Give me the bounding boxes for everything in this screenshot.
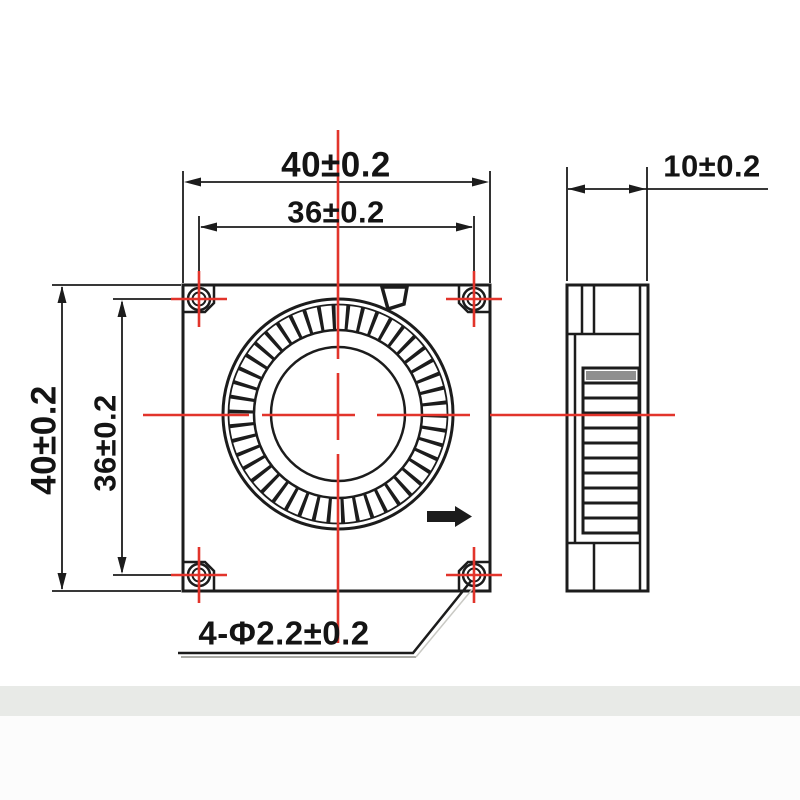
crosshair-hole-top-right — [446, 271, 502, 327]
dim-label-mounting-holes: 4-Φ2.2±0.2 — [198, 617, 369, 650]
side-view — [567, 285, 648, 591]
technical-drawing-canvas: 40±0.2 36±0.2 40±0.2 36±0.2 10±0.2 4-Φ2.… — [0, 0, 800, 800]
dim-label-hole-spacing-top: 36±0.2 — [287, 197, 385, 228]
side-view-vent-frame — [583, 368, 639, 533]
housing-notch — [382, 287, 407, 309]
dimension-lines — [62, 182, 768, 589]
side-view-top-cap — [567, 285, 640, 334]
below-band-area — [0, 716, 800, 800]
rotation-arrow-icon — [427, 506, 472, 527]
dim-label-height-left: 40±0.2 — [27, 385, 62, 495]
footer-band — [0, 686, 800, 716]
crosshair-hole-bottom-right — [446, 547, 502, 603]
front-view — [183, 285, 490, 591]
dim-label-depth-top: 10±0.2 — [663, 151, 761, 182]
side-view-bottom-cap — [567, 543, 640, 591]
side-view-slat-shaded — [586, 371, 636, 380]
dim-label-width-top: 40±0.2 — [281, 148, 391, 183]
crosshair-hole-top-left — [171, 271, 227, 327]
dim-label-hole-spacing-left: 36±0.2 — [90, 394, 121, 492]
side-view-body-outline — [567, 285, 648, 591]
crosshair-hole-bottom-left — [171, 547, 227, 603]
leader-shadow-diagonal — [416, 586, 475, 657]
side-view-vent-slats — [583, 383, 639, 518]
black-linework — [52, 167, 768, 657]
